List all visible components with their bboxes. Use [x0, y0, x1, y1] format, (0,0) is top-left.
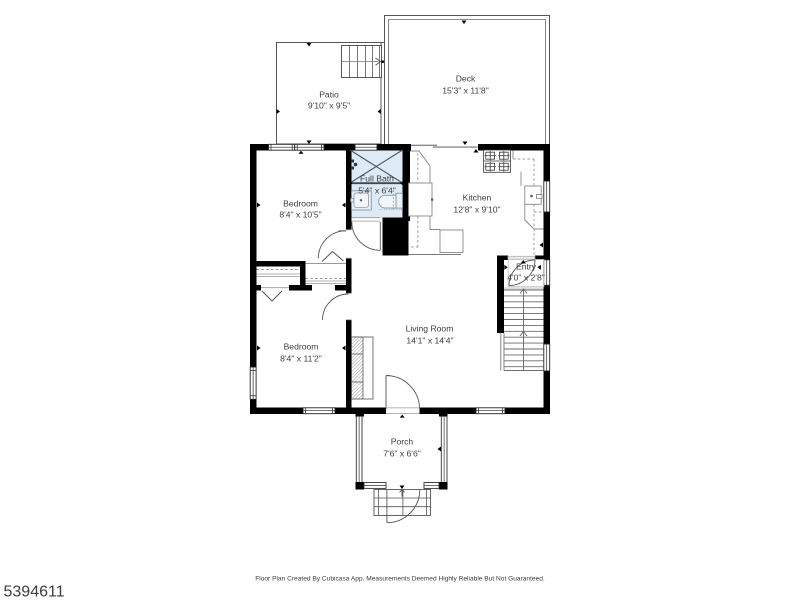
svg-text:12'8" x 9'10": 12'8" x 9'10"	[453, 204, 500, 214]
svg-text:15'3" x 11'8": 15'3" x 11'8"	[442, 85, 489, 95]
svg-text:Bedroom: Bedroom	[283, 198, 318, 208]
svg-text:8'4" x 10'5": 8'4" x 10'5"	[279, 209, 321, 219]
svg-text:9'10" x 9'5": 9'10" x 9'5"	[308, 101, 350, 111]
svg-text:7'6" x 6'6": 7'6" x 6'6"	[383, 448, 421, 458]
svg-text:Entry: Entry	[516, 261, 537, 271]
svg-text:Floor Plan Created By Cubicasa: Floor Plan Created By Cubicasa App. Meas…	[255, 576, 545, 583]
svg-text:Patio: Patio	[319, 90, 339, 100]
svg-text:Deck: Deck	[456, 73, 476, 83]
svg-text:5'4" x 6'4": 5'4" x 6'4"	[358, 185, 396, 195]
svg-text:8'4" x 11'2": 8'4" x 11'2"	[280, 353, 322, 363]
svg-text:Kitchen: Kitchen	[463, 192, 492, 202]
svg-text:14'1" x 14'4": 14'1" x 14'4"	[406, 335, 453, 345]
svg-text:Porch: Porch	[391, 436, 414, 446]
svg-text:Full Bath: Full Bath	[360, 174, 394, 184]
svg-text:5394611: 5394611	[4, 584, 65, 600]
svg-text:Living Room: Living Room	[406, 323, 454, 333]
svg-text:4'0" x 2'8": 4'0" x 2'8"	[507, 272, 545, 282]
svg-text:Bedroom: Bedroom	[284, 341, 319, 351]
